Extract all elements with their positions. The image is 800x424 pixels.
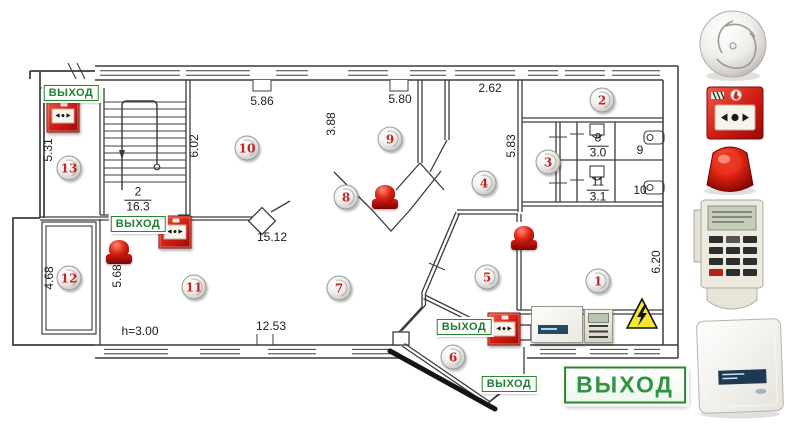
dimension-label: 5.80	[388, 92, 411, 106]
dimension-label: h=3.00	[121, 324, 158, 338]
detector-number: 7	[335, 281, 343, 295]
detector-number: 5	[483, 270, 491, 284]
smoke-detector-symbol: 9	[378, 127, 403, 152]
siren-symbol	[511, 226, 537, 250]
electrical-hazard-sign	[626, 297, 658, 336]
manual-call-point-symbol: ◄●►	[488, 313, 521, 346]
siren-dome	[375, 185, 395, 202]
room-number: 9	[632, 144, 649, 158]
siren-dome	[109, 240, 129, 257]
control-keypad	[584, 309, 613, 343]
smoke-detector-symbol: 7	[327, 276, 352, 301]
smoke-detector-symbol: 13	[57, 156, 82, 181]
smoke-detector-icon	[697, 8, 769, 89]
manual-call-point-icon	[706, 86, 764, 145]
room-label: 9	[632, 144, 649, 158]
smoke-detector-symbol: 4	[472, 171, 497, 196]
detector-number: 8	[342, 190, 350, 204]
dimension-label: 5.31	[41, 138, 55, 161]
cabinet-label-strip	[538, 325, 568, 334]
exit-sign: ВЫХОД	[437, 319, 492, 335]
control-cabinet-icon	[688, 314, 792, 424]
call-point-glyph: ◄●►	[164, 225, 187, 240]
siren-symbol	[106, 240, 132, 264]
call-point-led	[60, 103, 67, 107]
room-area: 16.3	[124, 201, 151, 215]
control-keypad-icon	[692, 198, 768, 315]
detector-number: 4	[480, 176, 488, 190]
legend-column	[684, 0, 800, 424]
dimension-label: 4.68	[42, 266, 56, 289]
exit-sign: ВЫХОД	[111, 216, 166, 232]
keypad-lcd	[588, 313, 609, 323]
room-label: 113.1	[587, 176, 609, 205]
smoke-detector-symbol: 10	[235, 136, 260, 161]
control-cabinet	[531, 306, 583, 343]
smoke-detector-symbol: 5	[475, 265, 500, 290]
detector-number: 12	[61, 271, 78, 285]
fire-siren-icon	[697, 140, 763, 201]
room-area: 3.1	[587, 191, 609, 205]
smoke-detector-symbol: 2	[590, 88, 615, 113]
detector-number: 3	[544, 155, 552, 169]
detector-number: 6	[449, 350, 457, 364]
detector-number: 9	[386, 132, 394, 146]
call-point-led	[501, 316, 508, 320]
call-point-glyph: ◄●►	[493, 322, 516, 337]
room-number: 2	[124, 186, 151, 201]
detector-number: 1	[594, 274, 602, 288]
hazard-triangle-icon	[626, 297, 658, 331]
room-number: 8	[588, 132, 609, 147]
dimension-label: 3.88	[324, 112, 338, 135]
plan-overlay: 5.865.802.623.886.025.315.8315.125.684.6…	[0, 0, 800, 424]
manual-call-point-symbol: ◄●►	[47, 100, 80, 133]
dimension-label: 15.12	[257, 230, 287, 244]
dimension-label: 5.86	[250, 94, 273, 108]
smoke-detector-symbol: 12	[57, 266, 82, 291]
exit-sign: ВЫХОД	[482, 376, 537, 392]
smoke-detector-symbol: 1	[586, 269, 611, 294]
call-point-led	[172, 219, 179, 223]
smoke-detector-symbol: 3	[536, 150, 561, 175]
room-label: 216.3	[124, 186, 151, 215]
exit-sign: ВЫХОД	[44, 85, 99, 101]
dimension-label: 2.62	[478, 81, 501, 95]
room-label: 83.0	[588, 132, 609, 161]
siren-dome	[514, 226, 534, 243]
room-number: 10	[628, 184, 651, 198]
detector-number: 11	[186, 280, 203, 294]
room-label: 10	[628, 184, 651, 198]
detector-number: 13	[61, 161, 78, 175]
smoke-detector-symbol: 6	[441, 345, 466, 370]
hatch-strip	[711, 92, 724, 99]
smoke-detector-symbol: 11	[182, 275, 207, 300]
detector-number: 2	[598, 93, 606, 107]
smoke-detector-symbol: 8	[334, 185, 359, 210]
detector-number: 10	[239, 141, 256, 155]
siren-symbol	[372, 185, 398, 209]
fire-alarm-floor-plan: 5.865.802.623.886.025.315.8315.125.684.6…	[0, 0, 800, 424]
room-area: 3.0	[588, 147, 609, 161]
dimension-label: 12.53	[256, 319, 286, 333]
dimension-label: 6.20	[649, 250, 663, 273]
dimension-label: 5.68	[110, 264, 124, 287]
exit-sign: ВЫХОД	[564, 367, 686, 404]
call-point-glyph: ◄●►	[52, 109, 75, 124]
dimension-label: 6.02	[187, 134, 201, 157]
keypad-keys	[589, 325, 608, 339]
room-number: 11	[587, 176, 609, 191]
dimension-label: 5.83	[504, 134, 518, 157]
